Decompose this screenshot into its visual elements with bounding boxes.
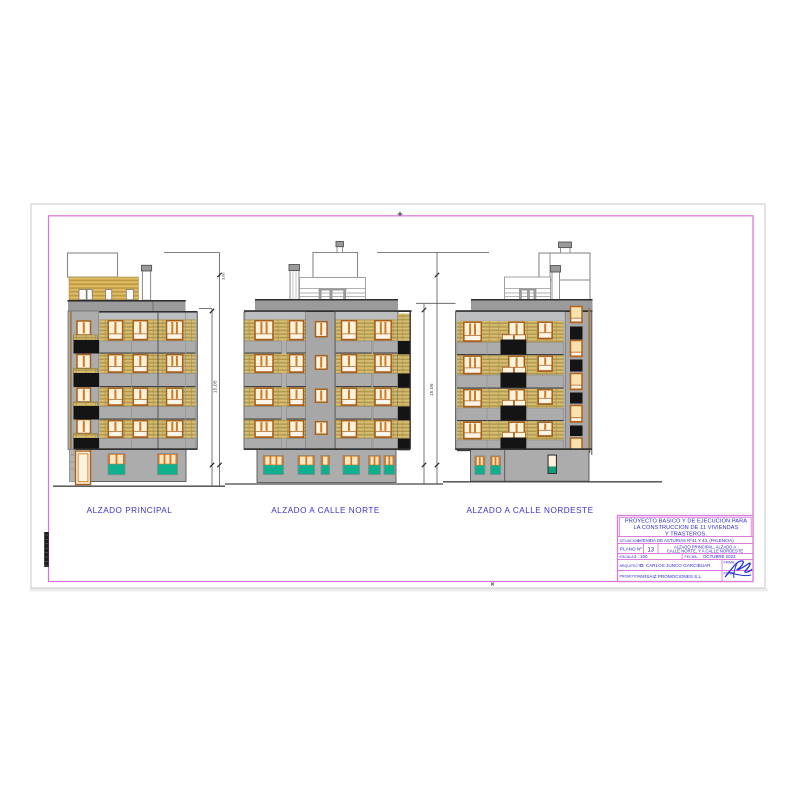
- svg-text:ESCALA:: ESCALA:: [620, 555, 635, 559]
- svg-text:15,05: 15,05: [213, 380, 218, 393]
- svg-text:PROYECTO BASICO Y DE EJECUCION: PROYECTO BASICO Y DE EJECUCION PARA: [625, 518, 747, 524]
- svg-text:1 : 100: 1 : 100: [634, 554, 648, 559]
- svg-text:Y TRASTEROS.: Y TRASTEROS.: [665, 531, 707, 537]
- svg-text:PROMOTOR:: PROMOTOR:: [620, 575, 642, 579]
- svg-text:LA CONSTRUCCION DE 11 VIVIENDA: LA CONSTRUCCION DE 11 VIVIENDAS: [634, 525, 739, 531]
- svg-text:AVENIDA DE ASTURIAS Nº41 Y 43,: AVENIDA DE ASTURIAS Nº41 Y 43, (PALENCIA…: [637, 538, 734, 543]
- svg-text:OCTUBRE 2023: OCTUBRE 2023: [703, 554, 736, 559]
- svg-text:PLANO Nº: PLANO Nº: [620, 547, 642, 552]
- svg-text:ALZADO A CALLE NORTE: ALZADO A CALLE NORTE: [271, 506, 380, 515]
- svg-text:ALZADO PRINCIPAL: ALZADO PRINCIPAL: [87, 506, 173, 515]
- svg-text:ARSAIZ PROMOCIONES S.L.: ARSAIZ PROMOCIONES S.L.: [640, 574, 702, 579]
- svg-text:FIRMA:: FIRMA:: [724, 561, 736, 565]
- svg-text:FECHA:: FECHA:: [685, 555, 698, 559]
- svg-text:13: 13: [647, 547, 654, 553]
- svg-text:D. CARLOS JUNCO GARCIBUAR: D. CARLOS JUNCO GARCIBUAR: [640, 563, 711, 568]
- svg-text:CALLE NORTE, Y A CALLE NORDEST: CALLE NORTE, Y A CALLE NORDESTE: [667, 549, 744, 554]
- svg-text:ALZADO A CALLE NORDESTE: ALZADO A CALLE NORDESTE: [466, 506, 593, 515]
- svg-text:15,05: 15,05: [429, 383, 434, 396]
- svg-text:3,00: 3,00: [222, 273, 226, 280]
